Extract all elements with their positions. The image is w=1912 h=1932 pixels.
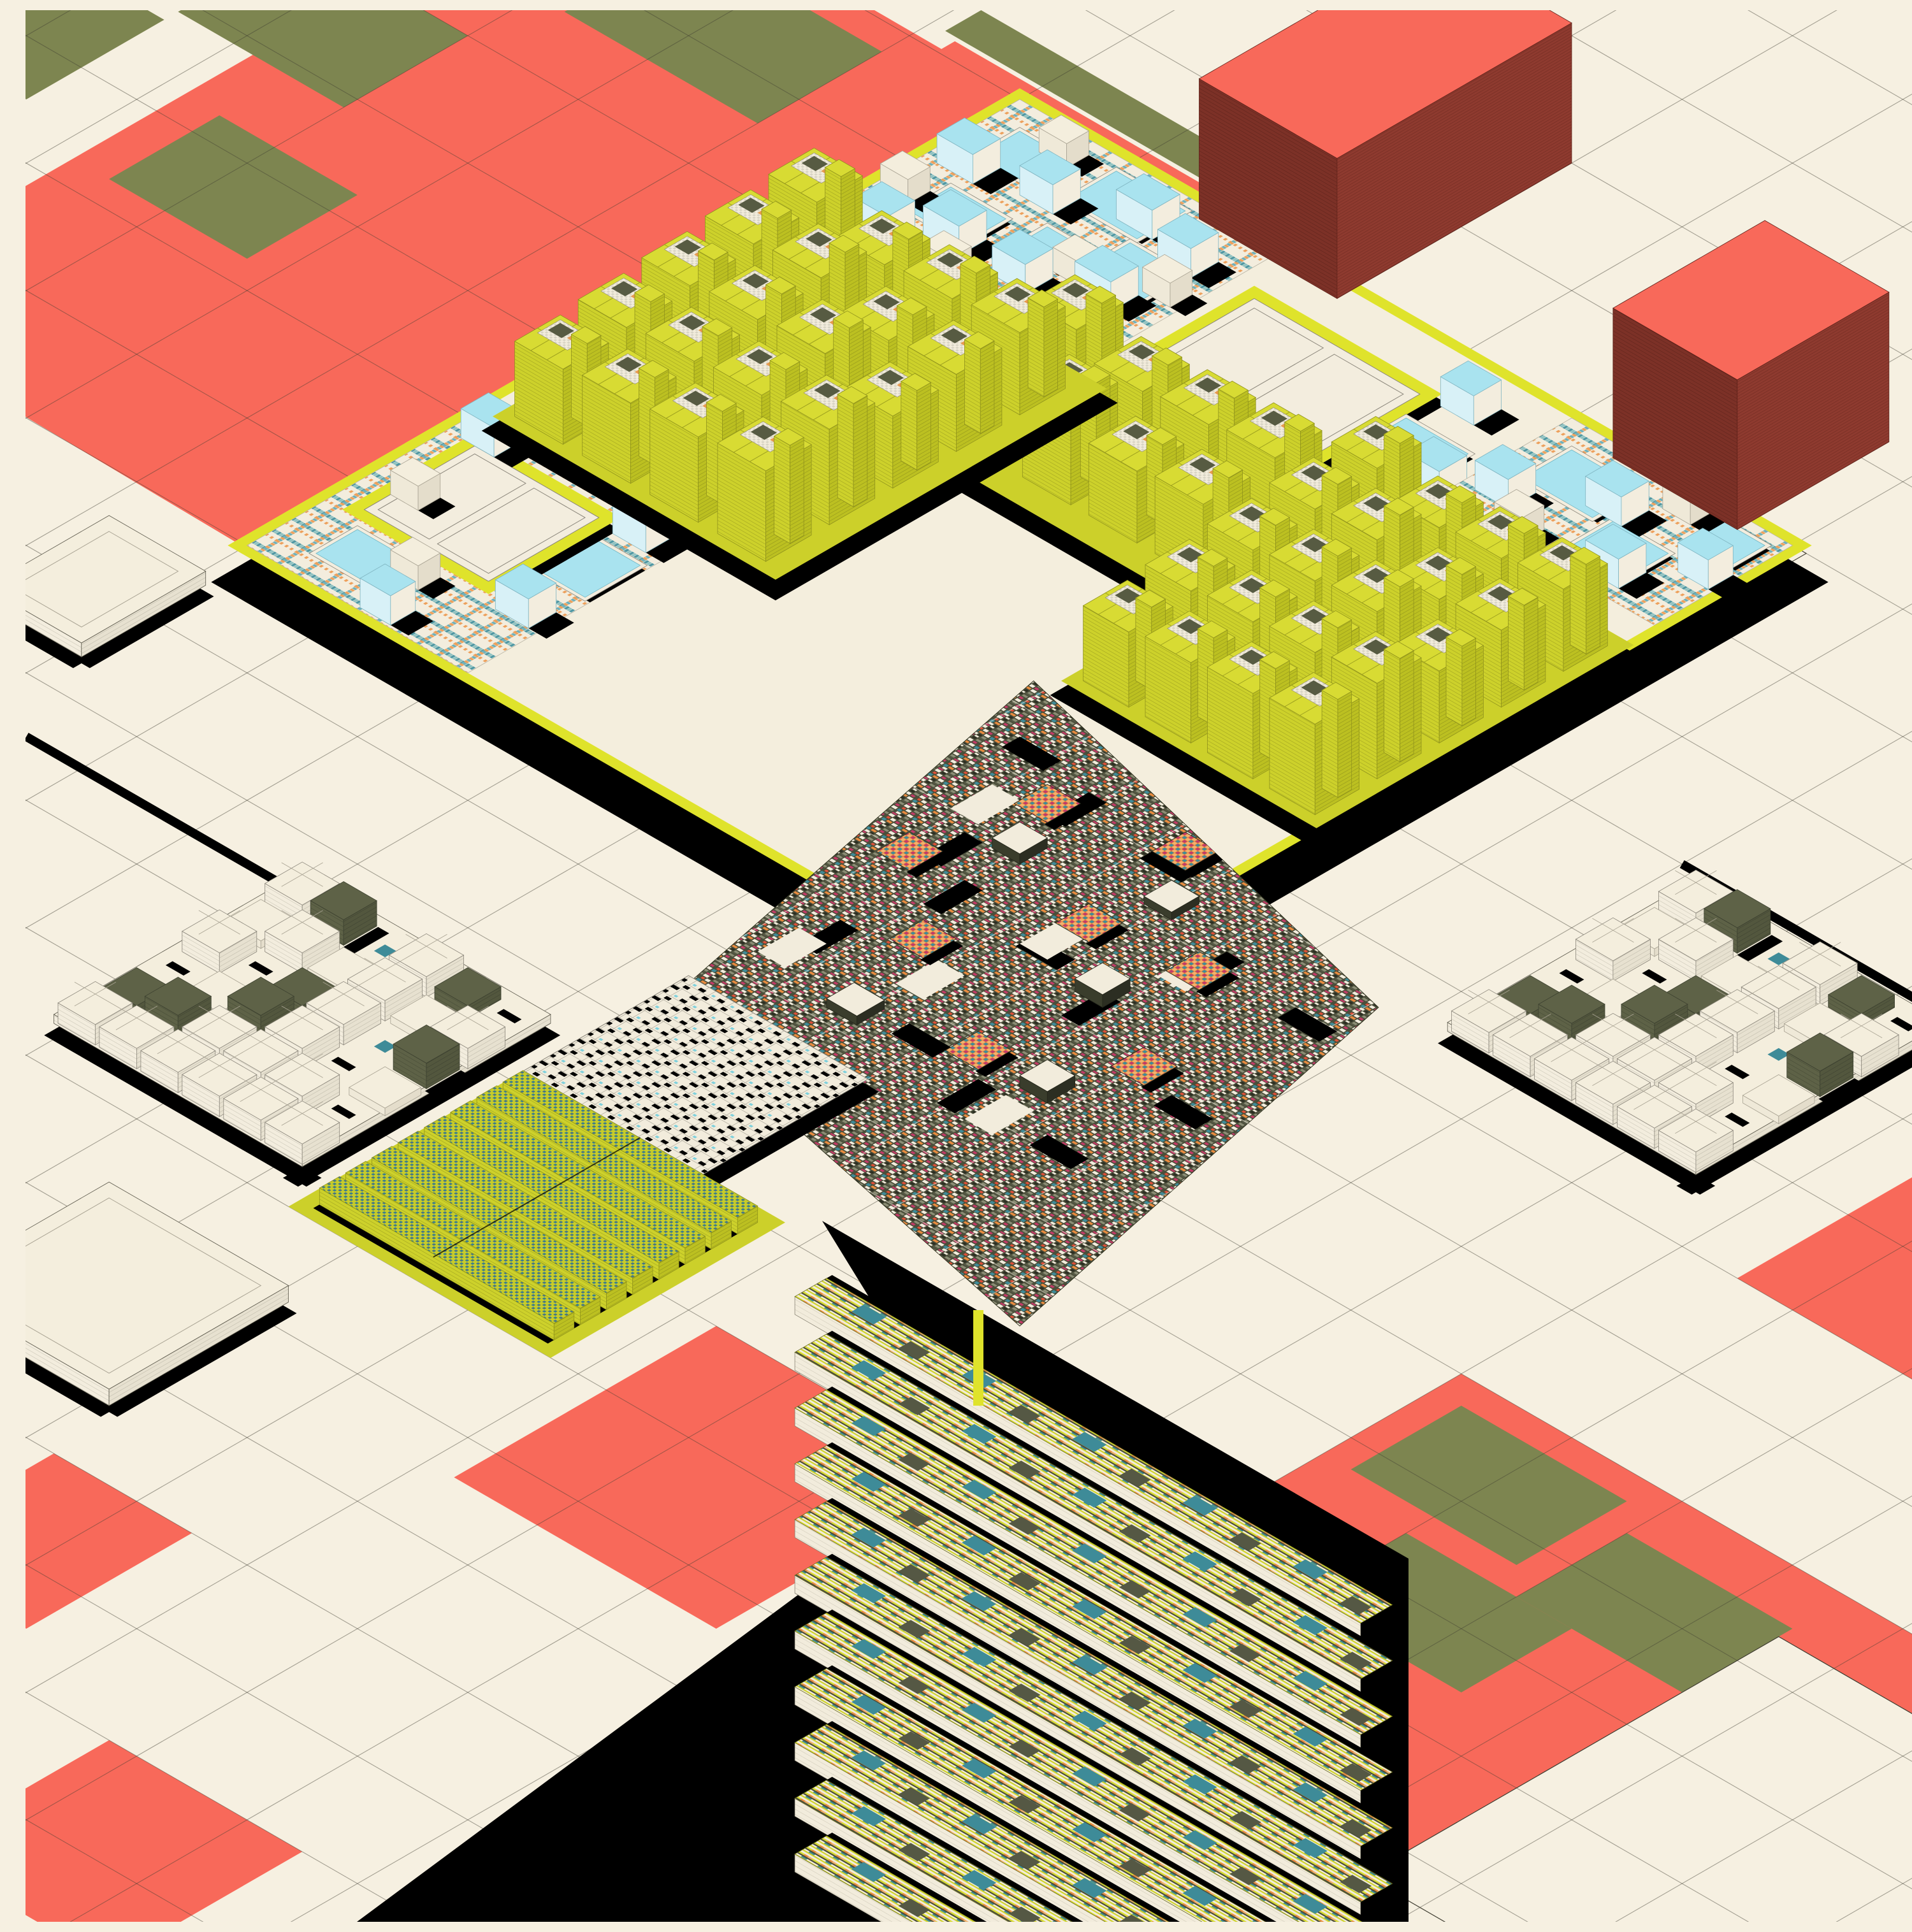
city-diagram-figure: Axonometric generative city-block diagra… xyxy=(25,10,1912,1922)
axonometric-city-svg: Axonometric generative city-block diagra… xyxy=(25,10,1912,1922)
